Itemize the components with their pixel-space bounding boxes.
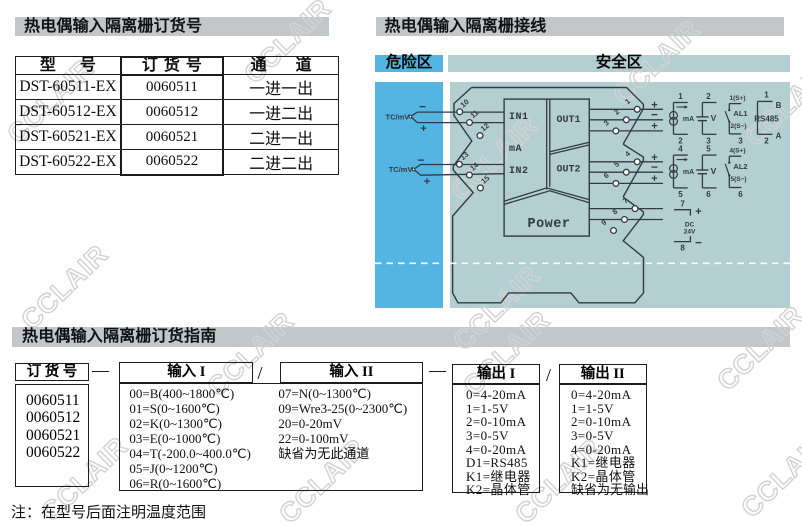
svg-text:V: V bbox=[711, 166, 717, 176]
svg-text:2: 2 bbox=[612, 107, 621, 117]
svg-text:TC/mV: TC/mV bbox=[386, 112, 410, 121]
svg-text:5: 5 bbox=[612, 159, 621, 169]
svg-text:2: 2 bbox=[706, 92, 711, 101]
svg-text:mA: mA bbox=[509, 144, 522, 155]
svg-text:5: 5 bbox=[706, 145, 711, 154]
svg-text:OUT1: OUT1 bbox=[556, 115, 580, 126]
svg-text:7: 7 bbox=[680, 200, 685, 209]
svg-text:1: 1 bbox=[764, 91, 769, 100]
svg-text:mA: mA bbox=[683, 169, 694, 176]
svg-text:4: 4 bbox=[678, 145, 683, 154]
svg-text:1(S+): 1(S+) bbox=[729, 95, 745, 102]
svg-text:+: + bbox=[651, 173, 657, 185]
svg-text:2: 2 bbox=[764, 136, 769, 145]
svg-text:TC/mV: TC/mV bbox=[389, 165, 413, 174]
svg-text:−: − bbox=[419, 100, 426, 114]
svg-text:−: − bbox=[651, 107, 658, 121]
svg-text:1: 1 bbox=[678, 92, 683, 101]
svg-text:13: 13 bbox=[458, 150, 470, 162]
svg-text:11: 11 bbox=[468, 108, 480, 120]
svg-text:+: + bbox=[424, 176, 430, 188]
svg-text:6: 6 bbox=[706, 190, 711, 199]
svg-text:6: 6 bbox=[738, 190, 743, 199]
svg-text:mA: mA bbox=[683, 116, 694, 123]
svg-text:3: 3 bbox=[738, 136, 743, 145]
svg-text:AL2: AL2 bbox=[733, 162, 747, 171]
svg-text:1: 1 bbox=[623, 97, 632, 107]
svg-text:−: − bbox=[695, 236, 702, 250]
svg-text:B: B bbox=[776, 101, 782, 110]
svg-text:V: V bbox=[711, 113, 717, 123]
svg-text:AL1: AL1 bbox=[733, 109, 747, 118]
svg-text:OUT2: OUT2 bbox=[556, 165, 580, 176]
svg-text:5: 5 bbox=[678, 190, 683, 199]
svg-text:IN1: IN1 bbox=[509, 112, 529, 123]
svg-text:Power: Power bbox=[527, 217, 570, 232]
svg-text:A: A bbox=[776, 132, 782, 141]
svg-text:−: − bbox=[651, 160, 658, 174]
svg-text:IN2: IN2 bbox=[509, 166, 529, 177]
svg-text:−: − bbox=[417, 153, 424, 167]
svg-text:+: + bbox=[695, 206, 701, 218]
svg-text:2(S−): 2(S−) bbox=[730, 123, 746, 130]
svg-text:10: 10 bbox=[459, 97, 471, 109]
svg-text:+: + bbox=[651, 121, 657, 133]
svg-text:8: 8 bbox=[680, 244, 685, 253]
svg-text:14: 14 bbox=[468, 160, 481, 173]
svg-text:15: 15 bbox=[479, 173, 491, 185]
svg-text:DC: DC bbox=[685, 222, 695, 229]
svg-text:+: + bbox=[420, 123, 426, 135]
svg-text:4(S+): 4(S+) bbox=[729, 148, 745, 155]
svg-text:RS485: RS485 bbox=[754, 114, 779, 123]
svg-text:24V: 24V bbox=[684, 229, 696, 236]
svg-text:5(S−): 5(S−) bbox=[730, 176, 746, 183]
